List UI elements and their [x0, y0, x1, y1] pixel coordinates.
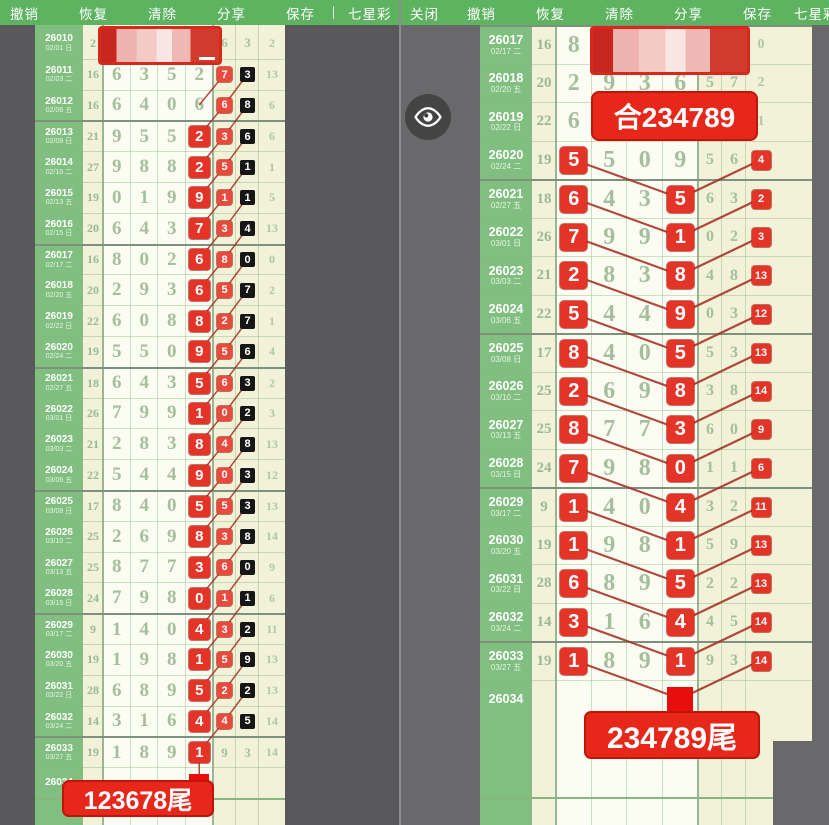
digit-cell[interactable]: 8 [663, 257, 699, 295]
chart-panel-right[interactable]: 2601702/17 二16802601802/20 五202936572260… [480, 25, 812, 825]
digit-cell[interactable]: 5 [556, 142, 592, 180]
digit-cell[interactable]: 5 [213, 492, 236, 521]
digit-cell[interactable]: 6 [627, 604, 663, 642]
digit-cell[interactable]: 4 [592, 335, 628, 372]
digit-cell[interactable]: 8 [103, 246, 131, 275]
digit-cell[interactable]: 5 [698, 527, 722, 565]
mark-red-big[interactable]: 7 [189, 218, 210, 239]
digit-cell[interactable]: 8 [186, 429, 214, 459]
toolbar-button-redo[interactable]: 恢复 [536, 3, 565, 23]
eye-icon[interactable] [405, 94, 451, 140]
digit-cell[interactable]: 0 [158, 492, 186, 521]
tail-cell[interactable]: 13 [746, 527, 776, 565]
digit-cell[interactable]: 6 [213, 91, 236, 121]
close-button[interactable]: 关闭 [410, 3, 439, 23]
digit-cell[interactable]: 8 [627, 450, 663, 488]
mark-red-small[interactable]: 8 [217, 252, 232, 267]
digit-cell[interactable]: 1 [663, 643, 699, 680]
digit-cell[interactable]: 6 [186, 91, 214, 121]
digit-cell[interactable]: 0 [698, 296, 722, 334]
mark-red-big[interactable]: 5 [667, 186, 694, 213]
digit-cell[interactable]: 5 [103, 460, 131, 490]
badge-red[interactable]: 14 [752, 652, 771, 671]
mark-black[interactable]: 8 [240, 437, 255, 452]
digit-cell[interactable]: 1 [186, 645, 214, 675]
tail-cell[interactable]: 13 [746, 335, 776, 372]
sum-annotation-label[interactable]: 合234789 [591, 91, 758, 141]
tail-cell[interactable]: 14 [746, 643, 776, 680]
badge-red[interactable]: 9 [752, 420, 771, 439]
mark-red-big[interactable]: 6 [560, 570, 587, 597]
mark-red-big[interactable]: 8 [560, 416, 587, 443]
tail-cell[interactable]: 2 [259, 275, 285, 305]
digit-cell[interactable]: 3 [213, 615, 236, 644]
mark-black[interactable]: 9 [240, 652, 255, 667]
digit-cell[interactable]: 9 [627, 565, 663, 603]
digit-cell[interactable]: 6 [186, 246, 214, 275]
digit-cell[interactable]: 0 [722, 411, 746, 449]
digit-cell[interactable]: 6 [722, 142, 746, 180]
digit-cell[interactable]: 5 [556, 296, 592, 334]
tail-cell[interactable]: 13 [259, 429, 285, 459]
digit-cell[interactable]: 0 [213, 460, 236, 490]
badge-red[interactable]: 13 [752, 536, 771, 555]
mark-black[interactable]: 1 [240, 160, 255, 175]
digit-cell[interactable]: 5 [186, 676, 214, 706]
toolbar-button-share[interactable]: 分享 [674, 3, 703, 23]
digit-cell[interactable]: 9 [131, 583, 159, 613]
mark-red-big[interactable]: 9 [189, 187, 210, 208]
tail-cell[interactable]: 13 [259, 214, 285, 244]
badge-red[interactable]: 13 [752, 266, 771, 285]
digit-cell[interactable]: 2 [236, 615, 259, 644]
digit-cell[interactable]: 5 [158, 122, 186, 151]
digit-cell[interactable]: 9 [158, 738, 186, 767]
digit-cell[interactable]: 3 [236, 60, 259, 90]
digit-cell[interactable]: 2 [103, 275, 131, 305]
digit-cell[interactable]: 5 [213, 152, 236, 182]
mark-red-big[interactable]: 1 [560, 648, 587, 675]
digit-cell[interactable]: 1 [698, 450, 722, 488]
digit-cell[interactable]: 8 [592, 565, 628, 603]
digit-cell[interactable]: 5 [663, 335, 699, 372]
mark-red-small[interactable]: 3 [217, 221, 232, 236]
tail-cell[interactable]: 2 [259, 369, 285, 398]
digit-cell[interactable]: 0 [186, 583, 214, 613]
digit-cell[interactable]: 2 [213, 676, 236, 706]
digit-cell[interactable]: 8 [236, 429, 259, 459]
tail-cell[interactable]: 2 [259, 28, 285, 59]
mark-red-small[interactable]: 4 [217, 437, 232, 452]
digit-cell[interactable]: 1 [556, 643, 592, 680]
digit-cell[interactable]: 6 [103, 91, 131, 121]
tail-cell[interactable]: 2 [746, 181, 776, 218]
digit-cell[interactable]: 7 [556, 219, 592, 257]
digit-cell[interactable]: 0 [236, 246, 259, 275]
chart-panel-left[interactable]: 2601002/01 日26322601102/03 二166352731326… [35, 25, 285, 825]
digit-cell[interactable]: 6 [131, 522, 159, 552]
digit-cell[interactable]: 4 [592, 489, 628, 526]
digit-cell[interactable]: 2 [158, 246, 186, 275]
tail-label-right[interactable]: 234789尾 [584, 711, 760, 759]
toolbar-button-clear[interactable]: 清除 [605, 3, 634, 23]
digit-cell[interactable]: 6 [556, 103, 592, 141]
lottery-type-label[interactable]: 七星彩 [794, 3, 829, 23]
digit-cell[interactable]: 8 [158, 583, 186, 613]
digit-cell[interactable]: 2 [103, 429, 131, 459]
digit-cell[interactable]: 6 [236, 337, 259, 367]
digit-cell[interactable]: 1 [103, 738, 131, 767]
digit-cell[interactable]: 9 [627, 373, 663, 411]
digit-cell[interactable]: 3 [722, 181, 746, 218]
digit-cell[interactable]: 8 [236, 91, 259, 121]
digit-cell[interactable]: 1 [103, 615, 131, 644]
digit-cell[interactable]: 5 [698, 142, 722, 180]
digit-cell[interactable]: 0 [158, 91, 186, 121]
digit-cell[interactable]: 0 [213, 399, 236, 429]
digit-cell[interactable]: 6 [103, 676, 131, 706]
digit-cell[interactable]: 2 [556, 65, 592, 103]
digit-cell[interactable]: 3 [236, 738, 259, 767]
digit-cell[interactable]: 7 [236, 306, 259, 336]
digit-cell[interactable]: 9 [103, 122, 131, 151]
digit-cell[interactable]: 2 [698, 565, 722, 603]
digit-cell[interactable]: 2 [236, 676, 259, 706]
tail-cell[interactable]: 0 [259, 246, 285, 275]
mark-red-big[interactable]: 2 [560, 262, 587, 289]
mark-red-big[interactable]: 1 [560, 532, 587, 559]
digit-cell[interactable]: 9 [663, 296, 699, 334]
badge-red[interactable]: 4 [752, 151, 771, 170]
mark-red-small[interactable]: 6 [217, 376, 232, 391]
mark-red-big[interactable]: 8 [667, 378, 694, 405]
digit-cell[interactable]: 9 [158, 676, 186, 706]
mark-red-big[interactable]: 9 [189, 465, 210, 486]
mark-red-big[interactable]: 8 [560, 340, 587, 367]
digit-cell[interactable]: 4 [131, 492, 159, 521]
digit-cell[interactable]: 8 [722, 373, 746, 411]
digit-cell[interactable]: 8 [103, 492, 131, 521]
mark-red-small[interactable]: 3 [217, 129, 232, 144]
digit-cell[interactable]: 3 [627, 257, 663, 295]
tail-cell[interactable]: 14 [746, 373, 776, 411]
mark-red-big[interactable]: 8 [189, 434, 210, 455]
badge-red[interactable]: 3 [752, 228, 771, 247]
digit-cell[interactable]: 6 [213, 369, 236, 398]
digit-cell[interactable]: 1 [722, 450, 746, 488]
mark-red-big[interactable]: 3 [560, 609, 587, 636]
mark-black[interactable]: 3 [240, 499, 255, 514]
digit-cell[interactable]: 4 [627, 296, 663, 334]
digit-cell[interactable]: 1 [103, 645, 131, 675]
tail-cell[interactable]: 12 [746, 296, 776, 334]
digit-cell[interactable]: 5 [213, 645, 236, 675]
mark-black[interactable]: 1 [240, 591, 255, 606]
digit-cell[interactable]: 8 [627, 527, 663, 565]
digit-cell[interactable]: 6 [158, 707, 186, 737]
digit-cell[interactable]: 4 [186, 615, 214, 644]
mark-red-small[interactable]: 0 [217, 468, 232, 483]
digit-cell[interactable]: 1 [186, 738, 214, 767]
digit-cell[interactable]: 9 [627, 643, 663, 680]
mark-red-big[interactable]: 4 [189, 711, 210, 732]
digit-cell[interactable]: 4 [698, 257, 722, 295]
digit-cell[interactable]: 1 [556, 527, 592, 565]
mark-black[interactable]: 0 [240, 560, 255, 575]
digit-cell[interactable]: 8 [158, 306, 186, 336]
tail-cell[interactable]: 13 [259, 676, 285, 706]
digit-cell[interactable]: 7 [556, 450, 592, 488]
mark-black[interactable]: 3 [240, 67, 255, 82]
mark-red-big[interactable]: 7 [560, 455, 587, 482]
mark-red-small[interactable]: 7 [217, 67, 232, 82]
digit-cell[interactable]: 9 [592, 219, 628, 257]
digit-cell[interactable]: 5 [698, 335, 722, 372]
digit-cell[interactable]: 3 [158, 369, 186, 398]
digit-cell[interactable]: 1 [236, 183, 259, 213]
digit-cell[interactable]: 3 [236, 460, 259, 490]
mark-black[interactable]: 2 [240, 683, 255, 698]
digit-cell[interactable]: 1 [236, 152, 259, 182]
digit-cell[interactable]: 4 [131, 91, 159, 121]
digit-cell[interactable]: 7 [186, 214, 214, 244]
tail-cell[interactable]: 13 [746, 565, 776, 603]
digit-cell[interactable] [236, 768, 259, 798]
digit-cell[interactable]: 6 [556, 565, 592, 603]
digit-cell[interactable]: 5 [213, 275, 236, 305]
mark-red-big[interactable]: 6 [560, 186, 587, 213]
digit-cell[interactable]: 3 [158, 429, 186, 459]
digit-cell[interactable]: 0 [627, 142, 663, 180]
digit-cell[interactable]: 0 [103, 183, 131, 213]
mark-red-big[interactable]: 5 [189, 680, 210, 701]
digit-cell[interactable]: 2 [722, 219, 746, 257]
mark-red-small[interactable]: 1 [217, 591, 232, 606]
tail-cell[interactable]: 14 [259, 707, 285, 737]
digit-cell[interactable]: 4 [663, 489, 699, 526]
digit-cell[interactable]: 3 [236, 28, 259, 59]
digit-cell[interactable]: 4 [213, 429, 236, 459]
digit-cell[interactable]: 7 [592, 411, 628, 449]
mark-red-big[interactable]: 4 [667, 494, 694, 521]
digit-cell[interactable]: 0 [131, 246, 159, 275]
digit-cell[interactable]: 3 [556, 604, 592, 642]
digit-cell[interactable]: 9 [103, 152, 131, 182]
mark-red-big[interactable]: 4 [189, 619, 210, 640]
digit-cell[interactable]: 3 [698, 489, 722, 526]
digit-cell[interactable]: 9 [186, 460, 214, 490]
digit-cell[interactable]: 2 [556, 257, 592, 295]
tail-cell[interactable] [259, 768, 285, 798]
digit-cell[interactable]: 5 [186, 492, 214, 521]
digit-cell[interactable]: 8 [556, 27, 592, 64]
digit-cell[interactable]: 8 [592, 643, 628, 680]
badge-red[interactable]: 11 [752, 498, 771, 517]
mark-red-big[interactable]: 0 [667, 455, 694, 482]
mark-red-big[interactable]: 2 [189, 126, 210, 147]
digit-cell[interactable]: 4 [213, 707, 236, 737]
mark-red-small[interactable]: 2 [217, 314, 232, 329]
tail-cell[interactable]: 6 [259, 91, 285, 121]
mark-black[interactable]: 7 [240, 314, 255, 329]
toolbar-button-share[interactable]: 分享 [217, 3, 246, 23]
digit-cell[interactable]: 3 [213, 214, 236, 244]
digit-cell[interactable]: 3 [213, 522, 236, 552]
mark-red-big[interactable]: 3 [667, 416, 694, 443]
digit-cell[interactable]: 8 [722, 257, 746, 295]
tail-cell[interactable]: 4 [259, 337, 285, 367]
digit-cell[interactable]: 3 [186, 553, 214, 583]
mark-red-big[interactable]: 1 [189, 403, 210, 424]
digit-cell[interactable]: 8 [556, 335, 592, 372]
digit-cell[interactable]: 0 [131, 306, 159, 336]
digit-cell[interactable]: 4 [158, 460, 186, 490]
digit-cell[interactable]: 2 [556, 373, 592, 411]
digit-cell[interactable]: 9 [158, 399, 186, 429]
digit-cell[interactable]: 9 [131, 275, 159, 305]
digit-cell[interactable]: 0 [158, 615, 186, 644]
digit-cell[interactable]: 4 [592, 181, 628, 218]
mark-black[interactable]: 5 [240, 714, 255, 729]
tail-cell[interactable]: 11 [259, 615, 285, 644]
digit-cell[interactable]: 0 [698, 219, 722, 257]
digit-cell[interactable]: 2 [103, 522, 131, 552]
mark-red-small[interactable]: 3 [217, 529, 232, 544]
digit-cell[interactable]: 1 [663, 527, 699, 565]
digit-cell[interactable]: 9 [663, 142, 699, 180]
digit-cell[interactable]: 3 [236, 369, 259, 398]
digit-cell[interactable]: 1 [131, 183, 159, 213]
digit-cell[interactable]: 9 [627, 219, 663, 257]
digit-cell[interactable]: 5 [131, 337, 159, 367]
mark-red-big[interactable]: 0 [189, 588, 210, 609]
mark-red-big[interactable]: 2 [189, 157, 210, 178]
tail-cell[interactable]: 6 [259, 122, 285, 151]
digit-cell[interactable]: 8 [186, 522, 214, 552]
tail-cell[interactable]: 13 [259, 492, 285, 521]
digit-cell[interactable]: 0 [663, 450, 699, 488]
digit-cell[interactable]: 6 [592, 373, 628, 411]
digit-cell[interactable]: 9 [722, 527, 746, 565]
digit-cell[interactable]: 3 [236, 492, 259, 521]
mark-black[interactable]: 1 [240, 190, 255, 205]
digit-cell[interactable]: 7 [131, 553, 159, 583]
badge-red[interactable]: 14 [752, 382, 771, 401]
digit-cell[interactable]: 2 [722, 489, 746, 526]
digit-cell[interactable]: 8 [131, 429, 159, 459]
digit-cell[interactable]: 4 [131, 214, 159, 244]
digit-cell[interactable]: 6 [213, 553, 236, 583]
digit-cell[interactable]: 8 [158, 645, 186, 675]
mark-red-big[interactable]: 9 [189, 341, 210, 362]
mark-red-big[interactable]: 8 [667, 262, 694, 289]
mark-black[interactable]: 6 [240, 129, 255, 144]
digit-cell[interactable]: 1 [556, 489, 592, 526]
digit-cell[interactable]: 5 [131, 122, 159, 151]
digit-cell[interactable]: 4 [698, 604, 722, 642]
digit-cell[interactable]: 2 [186, 152, 214, 182]
digit-cell[interactable]: 4 [131, 460, 159, 490]
mark-black[interactable]: 2 [240, 622, 255, 637]
digit-cell[interactable]: 6 [698, 181, 722, 218]
badge-red[interactable]: 2 [752, 190, 771, 209]
mark-red-small[interactable]: 6 [217, 560, 232, 575]
digit-cell[interactable]: 5 [592, 142, 628, 180]
mark-red-big[interactable]: 8 [189, 526, 210, 547]
mark-red-small[interactable]: 5 [217, 283, 232, 298]
digit-cell[interactable]: 8 [131, 738, 159, 767]
mark-black[interactable]: 6 [240, 344, 255, 359]
digit-cell[interactable]: 0 [236, 553, 259, 583]
mark-red-big[interactable]: 5 [667, 340, 694, 367]
digit-cell[interactable]: 4 [236, 214, 259, 244]
digit-cell[interactable]: 9 [592, 450, 628, 488]
mark-black[interactable]: 8 [240, 98, 255, 113]
digit-cell[interactable]: 5 [663, 565, 699, 603]
tail-cell[interactable]: 14 [259, 522, 285, 552]
mark-red-small[interactable]: 5 [217, 499, 232, 514]
mark-red-big[interactable]: 6 [189, 249, 210, 270]
digit-cell[interactable]: 4 [186, 707, 214, 737]
digit-cell[interactable]: 8 [103, 553, 131, 583]
mark-red-big[interactable]: 2 [560, 378, 587, 405]
digit-cell[interactable]: 9 [186, 337, 214, 367]
digit-cell[interactable]: 7 [627, 411, 663, 449]
mark-red-big[interactable]: 4 [667, 609, 694, 636]
digit-cell[interactable]: 2 [722, 565, 746, 603]
digit-cell[interactable]: 1 [186, 399, 214, 429]
digit-cell[interactable]: 2 [236, 399, 259, 429]
digit-cell[interactable]: 8 [236, 522, 259, 552]
tail-cell[interactable]: 11 [746, 489, 776, 526]
mark-red-small[interactable]: 5 [217, 160, 232, 175]
mark-red-big[interactable]: 5 [667, 570, 694, 597]
digit-cell[interactable]: 1 [236, 583, 259, 613]
digit-cell[interactable]: 9 [213, 738, 236, 767]
tail-cell[interactable]: 4 [746, 142, 776, 180]
mark-red-big[interactable]: 1 [667, 648, 694, 675]
mark-black[interactable]: 2 [240, 406, 255, 421]
mark-red-big[interactable]: 5 [189, 496, 210, 517]
tail-cell[interactable]: 14 [259, 738, 285, 767]
digit-cell[interactable]: 9 [592, 527, 628, 565]
digit-cell[interactable]: 5 [663, 181, 699, 218]
tail-cell[interactable]: 0 [746, 27, 776, 64]
digit-cell[interactable]: 8 [186, 306, 214, 336]
digit-cell[interactable]: 8 [131, 676, 159, 706]
mark-red-big[interactable]: 3 [189, 557, 210, 578]
mark-red-small[interactable]: 3 [217, 622, 232, 637]
digit-cell[interactable]: 3 [103, 707, 131, 737]
digit-cell[interactable]: 2 [186, 122, 214, 151]
digit-cell[interactable]: 3 [722, 296, 746, 334]
future-cell-marker[interactable] [667, 687, 693, 711]
mark-black[interactable]: 7 [240, 283, 255, 298]
mark-red-small[interactable]: 2 [217, 683, 232, 698]
mark-red-big[interactable]: 1 [189, 649, 210, 670]
digit-cell[interactable]: 8 [131, 152, 159, 182]
badge-red[interactable]: 12 [752, 305, 771, 324]
digit-cell[interactable]: 6 [103, 306, 131, 336]
tail-cell[interactable]: 13 [746, 257, 776, 295]
mark-red-big[interactable]: 5 [560, 147, 587, 174]
digit-cell[interactable]: 9 [131, 645, 159, 675]
mark-black[interactable]: 8 [240, 529, 255, 544]
digit-cell[interactable]: 8 [213, 246, 236, 275]
mark-red-small[interactable]: 0 [217, 406, 232, 421]
digit-cell[interactable]: 5 [186, 369, 214, 398]
tail-cell[interactable]: 6 [746, 450, 776, 488]
